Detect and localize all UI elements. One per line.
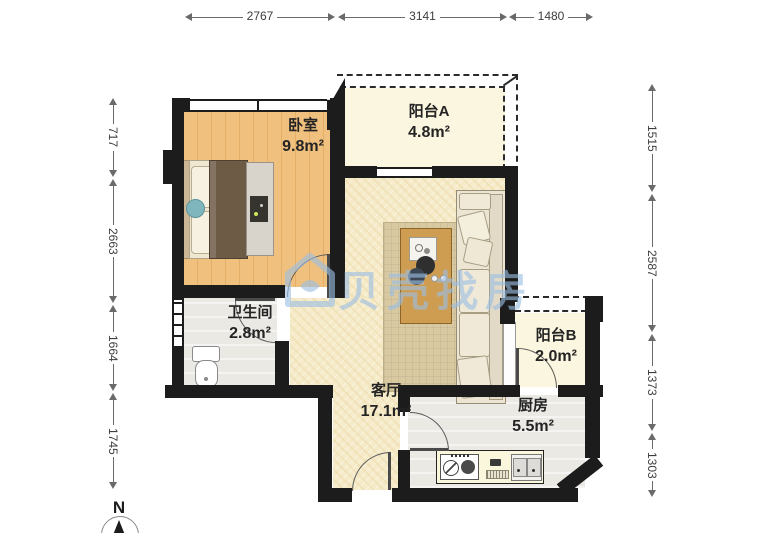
living-room-window bbox=[377, 167, 432, 178]
room-area: 9.8m² bbox=[268, 136, 338, 158]
balcony-b-door-leaf bbox=[516, 348, 519, 387]
toilet-flush-dot bbox=[204, 377, 208, 381]
indicator-dot bbox=[254, 212, 258, 216]
room-label-balcony-b: 阳台B 2.0m² bbox=[521, 326, 591, 368]
window-mullion bbox=[257, 101, 259, 110]
arrow-up-icon bbox=[109, 305, 117, 312]
arrow-down-icon bbox=[109, 384, 117, 391]
arrow-up-icon bbox=[648, 84, 656, 91]
burner bbox=[461, 460, 475, 474]
room-name: 客厅 bbox=[348, 381, 424, 401]
wall bbox=[165, 385, 333, 398]
arrow-down-icon bbox=[648, 490, 656, 497]
dimension-left-4: 1745 bbox=[105, 393, 121, 489]
dimension-value: 1303 bbox=[645, 449, 659, 482]
room-name: 阳台A bbox=[393, 102, 465, 122]
entry-door-leaf bbox=[388, 452, 391, 490]
kitchen-door-leaf bbox=[410, 448, 448, 451]
arrow-up-icon bbox=[648, 433, 656, 440]
arrow-down-icon bbox=[648, 325, 656, 332]
room-label-bedroom: 卧室 9.8m² bbox=[268, 116, 338, 158]
dimension-value: 2663 bbox=[106, 225, 120, 258]
dimension-value: 3141 bbox=[405, 9, 440, 23]
room-name: 卧室 bbox=[268, 116, 338, 136]
stove-knobs bbox=[451, 454, 469, 457]
kitchen-counter bbox=[436, 450, 544, 484]
dimension-value: 1373 bbox=[645, 366, 659, 399]
dimension-left-1: 717 bbox=[105, 98, 121, 177]
dimension-right-2: 2587 bbox=[644, 194, 660, 332]
arrow-down-icon bbox=[648, 424, 656, 431]
wall bbox=[172, 98, 184, 398]
dimension-right-4: 1303 bbox=[644, 433, 660, 497]
arrow-up-icon bbox=[109, 98, 117, 105]
wall bbox=[275, 341, 289, 387]
wall bbox=[172, 98, 190, 112]
bed-duvet bbox=[209, 160, 248, 259]
watermark-text: 贝壳找房 bbox=[338, 258, 534, 319]
toilet-bowl bbox=[195, 360, 218, 388]
arrow-down-icon bbox=[109, 296, 117, 303]
dimension-top-3: 1480 bbox=[509, 10, 593, 24]
room-area: 5.5m² bbox=[498, 416, 568, 438]
sink bbox=[511, 454, 542, 481]
room-name: 阳台B bbox=[521, 326, 591, 346]
arrow-up-icon bbox=[648, 334, 656, 341]
arrow-down-icon bbox=[648, 185, 656, 192]
room-label-kitchen: 厨房 5.5m² bbox=[498, 396, 568, 438]
arrow-right-icon bbox=[500, 13, 507, 21]
control-button bbox=[490, 459, 501, 466]
sofa-seat-cushion bbox=[459, 313, 490, 357]
arrow-left-icon bbox=[509, 13, 516, 21]
floor-plan: 2767 3141 1480 717 2663 1664 1745 1515 bbox=[0, 0, 768, 533]
room-area: 2.8m² bbox=[212, 323, 288, 345]
wall bbox=[172, 285, 285, 298]
dimension-right-3: 1373 bbox=[644, 334, 660, 431]
drain-dot bbox=[517, 469, 520, 472]
arrow-left-icon bbox=[338, 13, 345, 21]
arrow-down-icon bbox=[109, 170, 117, 177]
arrow-up-icon bbox=[109, 179, 117, 186]
tray-item bbox=[415, 244, 423, 252]
dimension-value: 1745 bbox=[106, 425, 120, 458]
arrow-right-icon bbox=[328, 13, 335, 21]
dimension-value: 1480 bbox=[534, 9, 569, 23]
dimension-top-2: 3141 bbox=[338, 10, 507, 24]
room-area: 2.0m² bbox=[521, 346, 591, 368]
wall bbox=[398, 450, 410, 490]
dimension-value: 2587 bbox=[645, 247, 659, 280]
tv-panel bbox=[250, 196, 268, 222]
arrow-down-icon bbox=[109, 482, 117, 489]
dimension-right-1: 1515 bbox=[644, 84, 660, 192]
drain-dot bbox=[532, 469, 535, 472]
dimension-left-3: 1664 bbox=[105, 305, 121, 391]
wall bbox=[163, 150, 172, 184]
room-label-living-room: 客厅 17.1m² bbox=[348, 381, 424, 423]
dimension-value: 717 bbox=[106, 124, 120, 150]
room-area: 4.8m² bbox=[393, 122, 465, 144]
burner bbox=[443, 460, 459, 476]
wall bbox=[318, 390, 332, 502]
stove bbox=[440, 454, 479, 480]
wall bbox=[392, 488, 578, 502]
beike-logo-icon bbox=[284, 252, 336, 308]
dimension-top-1: 2767 bbox=[185, 10, 335, 24]
north-label: N bbox=[103, 498, 135, 518]
room-name: 卫生间 bbox=[212, 303, 288, 323]
sink-basin bbox=[527, 458, 541, 477]
compass-circle bbox=[101, 516, 139, 533]
wall bbox=[585, 296, 600, 458]
room-label-balcony-a: 阳台A 4.8m² bbox=[393, 102, 465, 144]
room-name: 厨房 bbox=[498, 396, 568, 416]
dimension-left-2: 2663 bbox=[105, 179, 121, 303]
bathroom-door-leaf bbox=[235, 298, 275, 301]
wall bbox=[333, 166, 377, 178]
tray-item bbox=[424, 248, 430, 254]
arrow-up-icon bbox=[648, 194, 656, 201]
arrow-right-icon bbox=[586, 13, 593, 21]
dimension-value: 1515 bbox=[645, 122, 659, 155]
sofa-armrest bbox=[459, 193, 491, 210]
bedroom-window bbox=[190, 99, 327, 112]
compass-needle-icon bbox=[113, 520, 125, 533]
room-label-bathroom: 卫生间 2.8m² bbox=[212, 303, 288, 345]
cutting-board bbox=[486, 470, 509, 479]
sink-basin bbox=[513, 458, 527, 477]
room-area: 17.1m² bbox=[348, 401, 424, 423]
light-wall bbox=[503, 322, 516, 388]
arrow-left-icon bbox=[185, 13, 192, 21]
arrow-up-icon bbox=[109, 393, 117, 400]
round-pillow bbox=[186, 199, 205, 218]
dimension-value: 1664 bbox=[106, 332, 120, 365]
indicator-dot bbox=[260, 204, 263, 207]
dimension-value: 2767 bbox=[243, 9, 278, 23]
bathroom-window bbox=[172, 300, 184, 346]
